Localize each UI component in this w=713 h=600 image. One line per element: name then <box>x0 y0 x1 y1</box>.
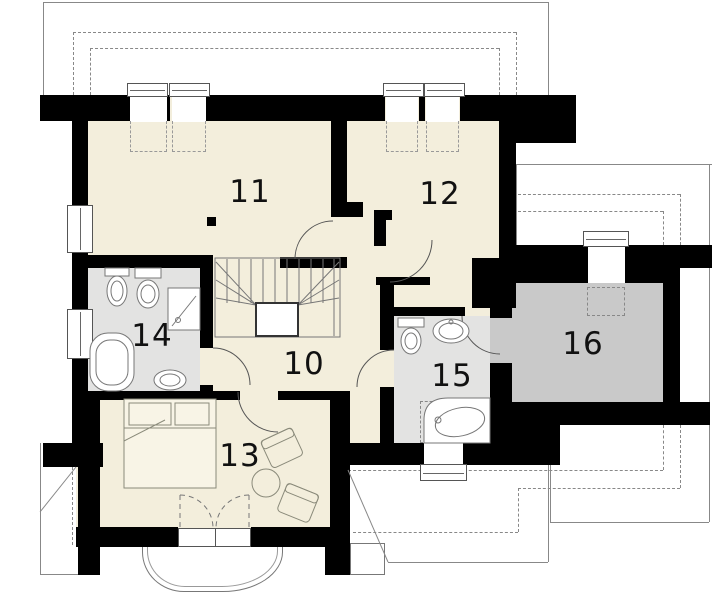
staircase <box>215 258 340 337</box>
door-arc-room11 <box>295 221 333 259</box>
stair-landing <box>256 303 298 336</box>
toilet-icon <box>398 318 424 354</box>
corner-bathtub-icon <box>424 398 490 443</box>
room-label-16: 16 <box>562 326 603 362</box>
door-arc-room13 <box>238 392 278 432</box>
armchair-icon <box>260 427 303 469</box>
shower-icon <box>168 288 200 330</box>
bed-icon <box>124 399 216 488</box>
washbasin-icon <box>433 319 469 343</box>
door-arc-room15-hall <box>357 350 394 387</box>
door-arc-room14 <box>213 348 250 385</box>
toilet-icon <box>135 268 161 308</box>
door-arc-room12 <box>390 240 432 282</box>
french-door-arcs <box>180 495 249 528</box>
armchair-icon <box>277 483 320 524</box>
room-label-12: 12 <box>419 176 460 212</box>
room-label-15: 15 <box>431 358 472 394</box>
room-label-13: 13 <box>219 438 260 474</box>
room-label-11: 11 <box>229 174 270 210</box>
bathtub-icon <box>90 333 134 391</box>
room-label-14: 14 <box>131 318 172 354</box>
plan-drawing-layer <box>0 0 713 600</box>
washbasin-icon <box>154 370 186 390</box>
room-label-10: 10 <box>283 346 324 382</box>
bidet-icon <box>105 268 129 306</box>
floor-plan: 10 11 12 13 14 15 16 <box>0 0 713 600</box>
